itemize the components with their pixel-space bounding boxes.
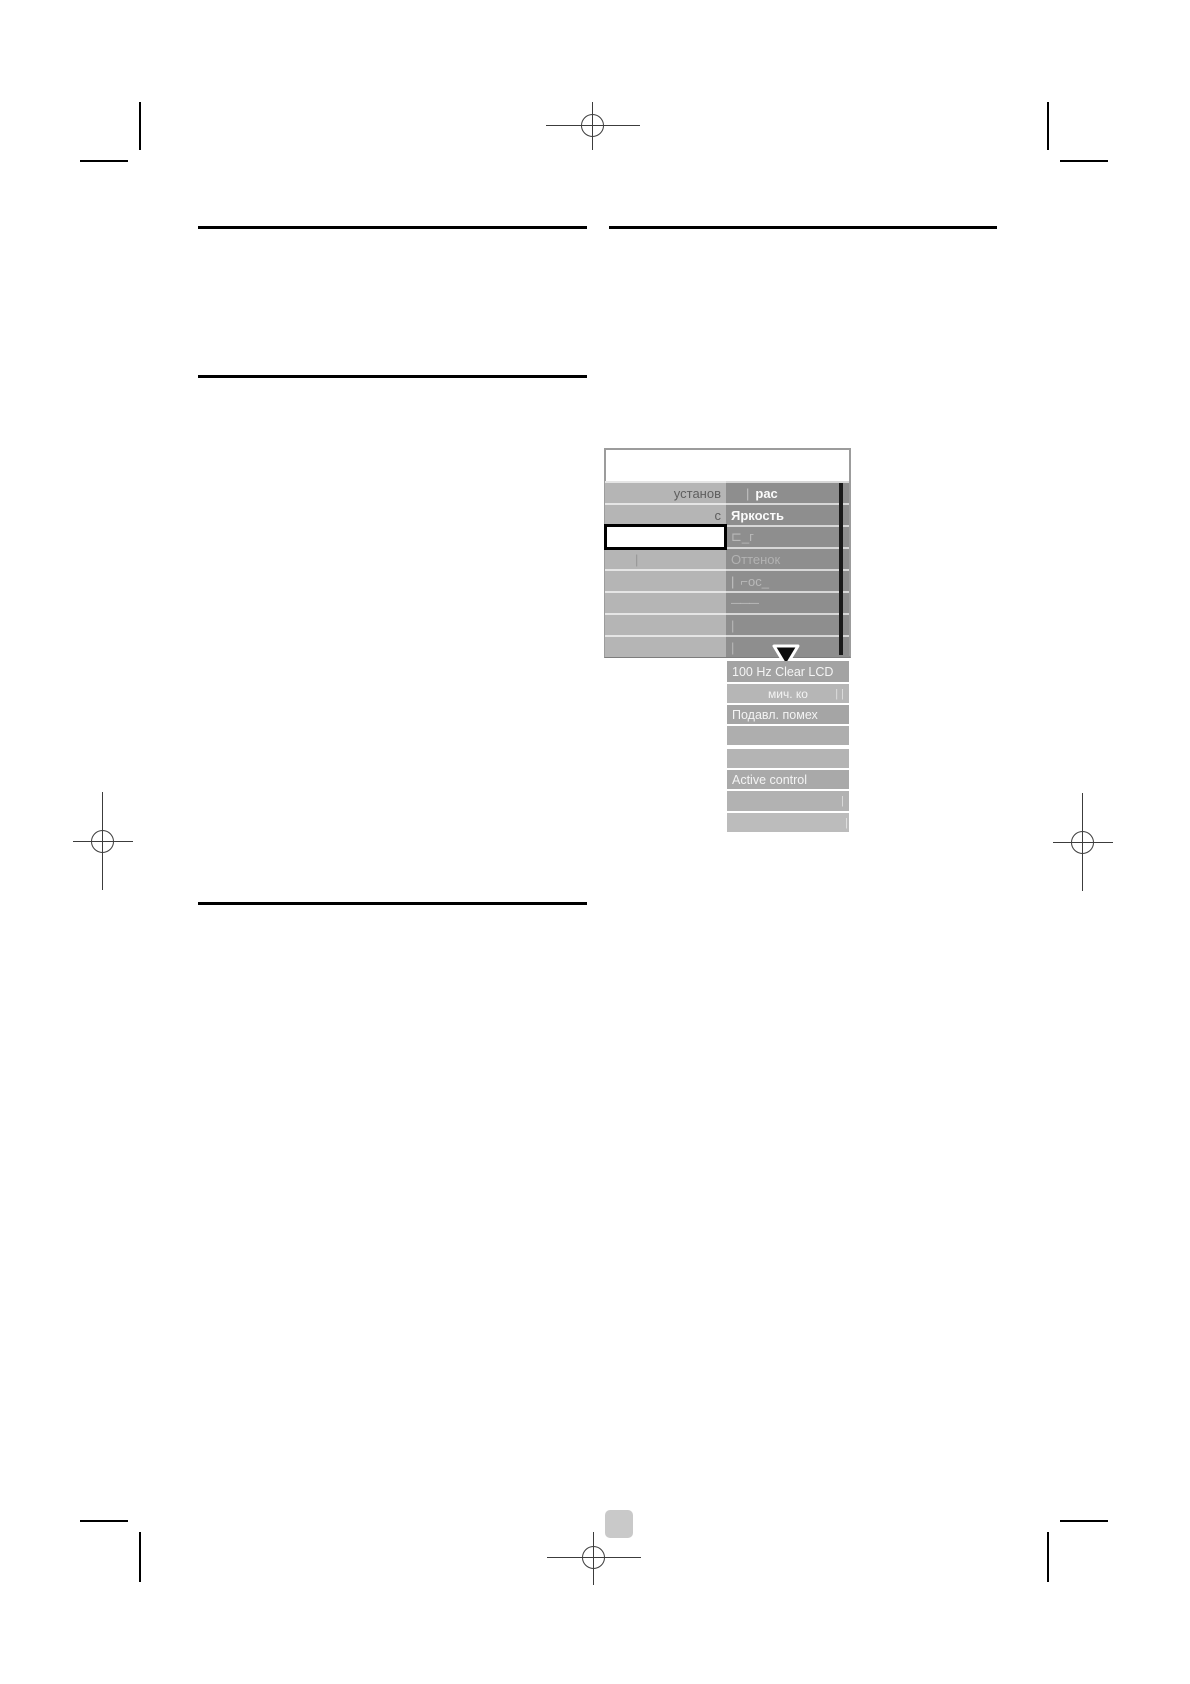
crop-mark-top-right-horizontal [1060,160,1108,162]
menu-left-row [605,635,726,657]
menu-right-row: ⊏_г [726,525,849,547]
menu-right-row-tint: Оттенок [726,547,849,569]
menu-lower-row-100hz: 100 Hz Clear LCD [727,661,849,682]
menu-lower-row: | [727,791,849,811]
section-rule-left-top [198,226,587,229]
menu-left-row [605,569,726,591]
crop-mark-bottom-right-vertical [1047,1532,1049,1582]
section-rule-right-top [609,226,997,229]
crop-mark-top-right-vertical [1047,102,1049,150]
manual-page: установ с | |рас Яркость ⊏_г Оттенок |⌐о… [0,0,1190,1684]
menu-right-row: ——— [726,591,849,613]
page-number-box [605,1510,633,1538]
section-rule-left-second [198,375,587,378]
menu-lower-row-noise-reduction: Подавл. помех [727,705,849,724]
menu-lower-row-active-control: Active control [727,770,849,789]
menu-right-row-brightness: Яркость [726,503,849,525]
menu-lower-row: | [727,813,849,832]
menu-left-row [605,591,726,613]
crop-mark-top-left-horizontal [80,160,128,162]
menu-right-row: |⌐ос_ [726,569,849,591]
crop-mark-top-left-vertical [139,102,141,150]
menu-left-row: с [605,503,726,525]
selected-row-highlight [604,524,727,550]
crop-mark-bottom-left-vertical [139,1532,141,1582]
menu-right-row: |рас [726,481,849,503]
menu-left-column: установ с | [605,481,726,657]
menu-left-row: | [605,547,726,569]
menu-lower-row: мич. ко| | [727,684,849,703]
menu-left-row [605,613,726,635]
menu-lower-row [727,726,849,745]
menu-lower-row [727,749,849,768]
crop-mark-bottom-left-horizontal [80,1520,128,1522]
menu-right-row: | [726,613,849,635]
menu-scrollbar [839,483,843,655]
crop-mark-bottom-right-horizontal [1060,1520,1108,1522]
menu-right-column: |рас Яркость ⊏_г Оттенок |⌐ос_ ——— | | [726,481,849,657]
menu-left-row: установ [605,481,726,503]
section-rule-left-third [198,902,587,905]
